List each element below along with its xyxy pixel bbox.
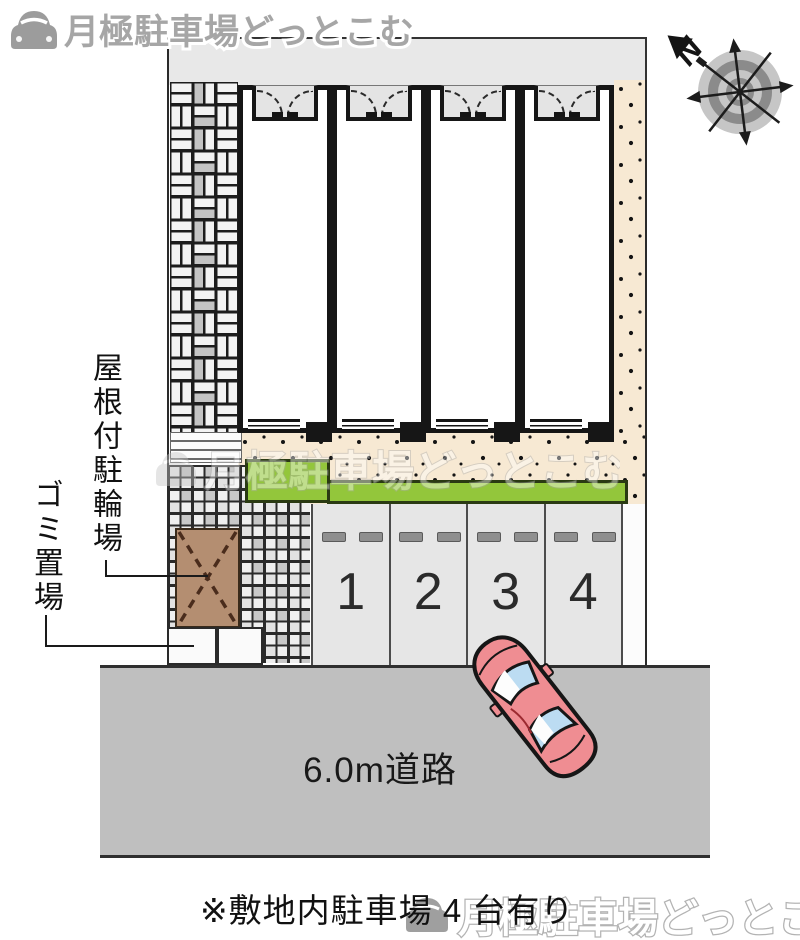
watermark-center: 月極駐車場どっとこむ (150, 436, 620, 498)
leader-line (45, 645, 194, 647)
door-leaf (272, 112, 283, 117)
leader-line (105, 575, 208, 577)
watermark-text: 月極駐車場どっとこむ (204, 448, 620, 495)
door-leaf (554, 112, 565, 117)
building-unit-4 (520, 85, 614, 433)
parking-space-number: 2 (391, 566, 467, 618)
parking-space-4: 4 (546, 504, 624, 665)
window (530, 419, 582, 432)
car-icon (11, 11, 57, 49)
door-leaf (366, 112, 377, 117)
door-leaf (569, 112, 580, 117)
leader-line (45, 615, 47, 647)
parking-space-number: 3 (468, 566, 544, 618)
entry-alcove (346, 85, 412, 121)
parking-mark (554, 532, 578, 542)
compass-rose: N (640, 0, 800, 170)
garbage-area-label: ゴミ置場 (29, 479, 62, 615)
car-icon (156, 452, 196, 486)
parking-mark (592, 532, 616, 542)
parking-space-1: 1 (313, 504, 391, 665)
parking-spaces: 1 2 3 4 (311, 504, 623, 665)
window (342, 419, 394, 432)
parking-space-number: 1 (313, 566, 389, 618)
roof-x-mark (177, 530, 238, 626)
parking-mark (477, 532, 501, 542)
brick-paving (170, 82, 238, 458)
door-leaf (381, 112, 392, 117)
door-leaf (460, 112, 471, 117)
parking-space-2: 2 (391, 504, 469, 665)
parking-mark (399, 532, 423, 542)
utility-box (217, 627, 263, 665)
building-unit-2 (332, 85, 426, 433)
site-logo: 月極駐車場どっとこむ (6, 3, 426, 55)
door-leaf (287, 112, 298, 117)
site-caption: ※敷地内駐車場 4 台有り (200, 884, 574, 932)
parking-mark (359, 532, 383, 542)
door-leaf (475, 112, 486, 117)
building-unit-3 (426, 85, 520, 433)
bicycle-parking-roof (175, 528, 240, 628)
parking-mark (322, 532, 346, 542)
building-unit-1 (238, 85, 332, 433)
entry-alcove (534, 85, 600, 121)
parking-side-margin (623, 504, 645, 665)
north-arrow: N (659, 25, 713, 75)
road-width-label: 6.0m道路 (240, 742, 520, 793)
window (248, 419, 300, 432)
parking-mark (514, 532, 538, 542)
logo-text: 月極駐車場どっとこむ (64, 13, 414, 52)
entry-alcove (440, 85, 506, 121)
entry-alcove (252, 85, 318, 121)
parking-space-number: 4 (546, 566, 622, 618)
window (436, 419, 488, 432)
parking-mark (437, 532, 461, 542)
bicycle-parking-label: 屋根付駐輪場 (88, 352, 121, 556)
